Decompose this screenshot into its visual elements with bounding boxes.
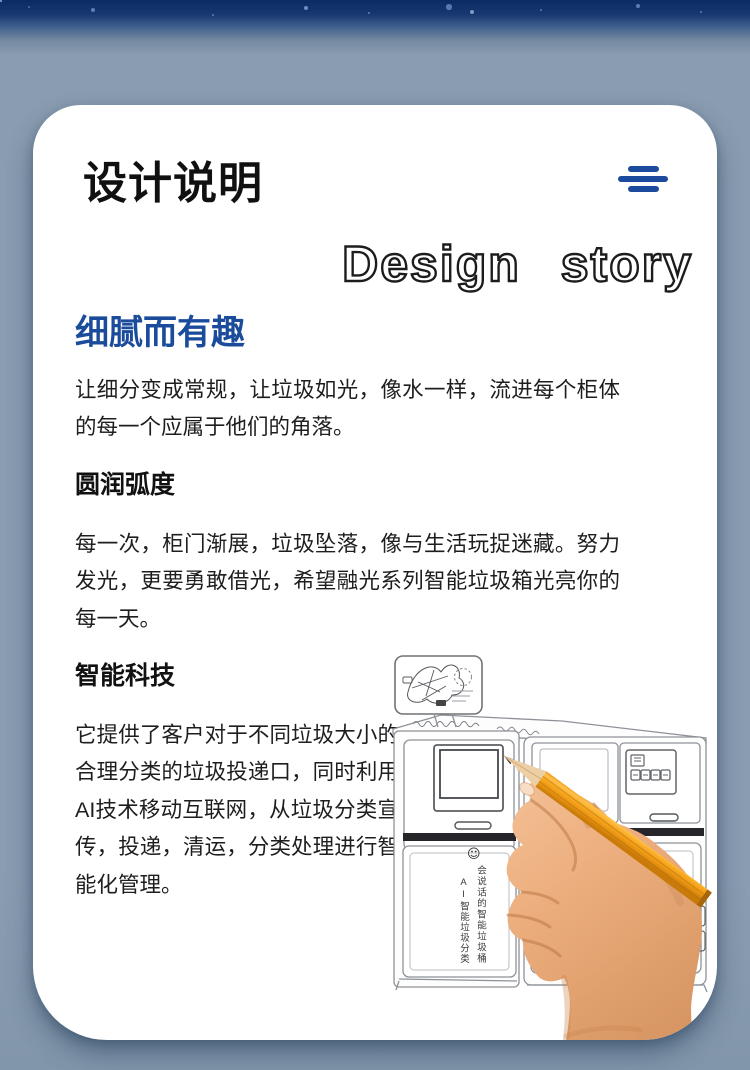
bin-label-primary: 会说话的智能垃圾桶 bbox=[473, 865, 487, 964]
design-story-card: 设计说明 Design story 细腻而有趣 让细分变成常规，让垃圾如光，像水… bbox=[33, 105, 717, 1040]
page: 设计说明 Design story 细腻而有趣 让细分变成常规，让垃圾如光，像水… bbox=[0, 0, 750, 1070]
smiley-icon: ☺ bbox=[467, 847, 481, 862]
ocean-sky-band-speckles bbox=[0, 0, 2, 2]
bin-label-secondary: AI智能垃圾分类 bbox=[456, 877, 470, 964]
hand-pencil-bin-illustration bbox=[33, 105, 717, 1040]
